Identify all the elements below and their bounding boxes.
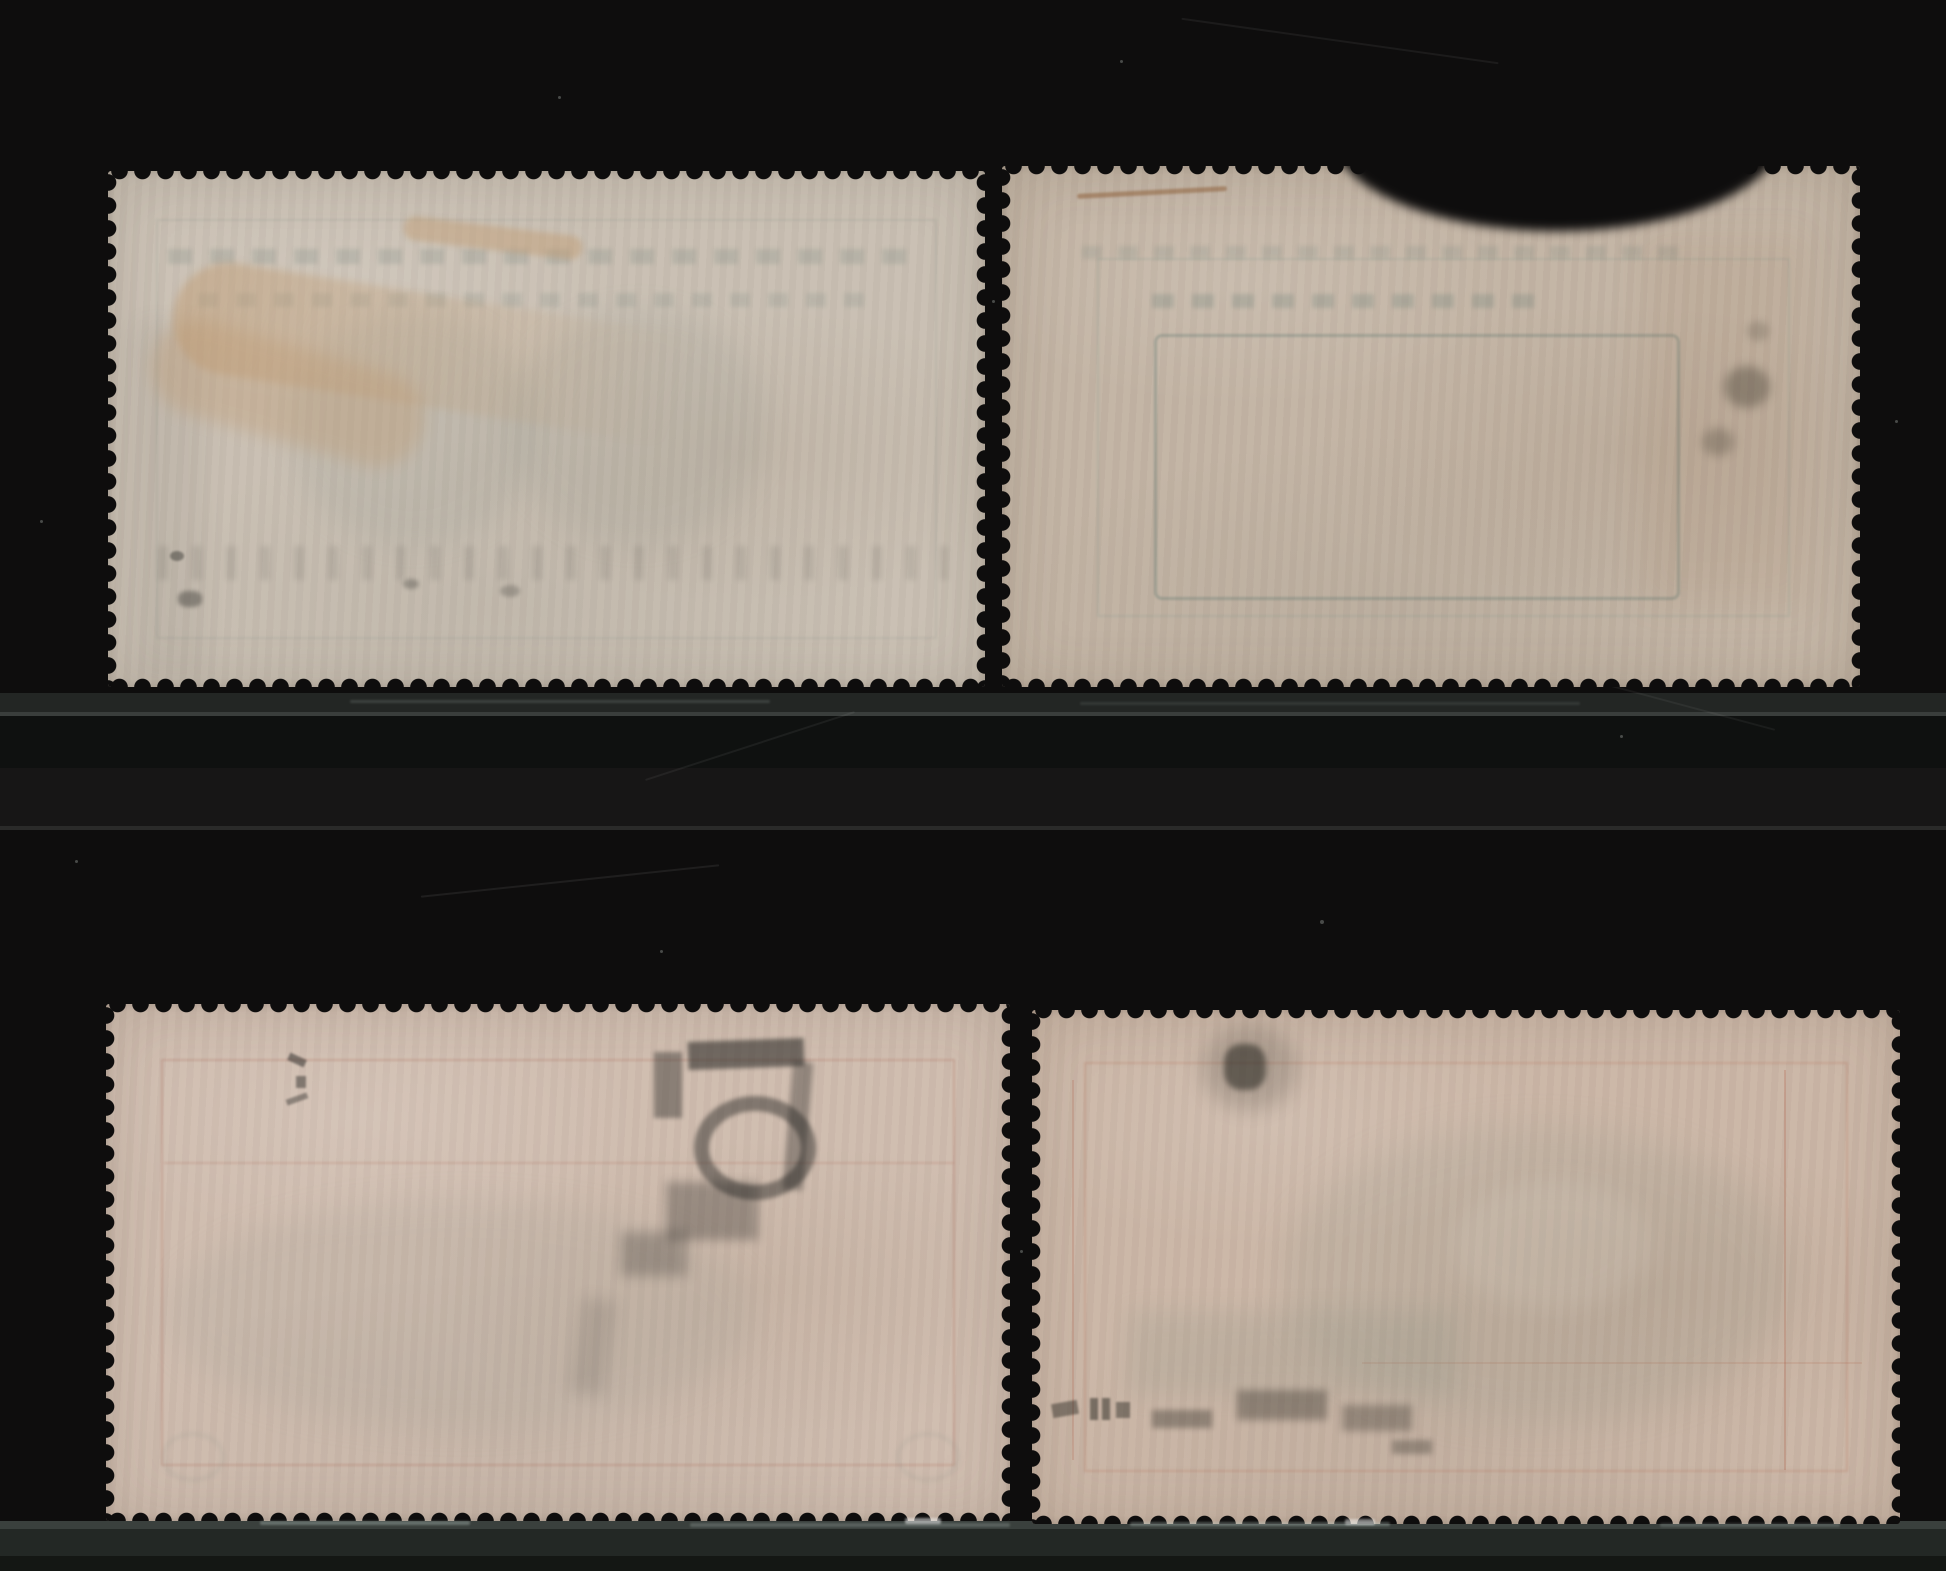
dust-speck [1020, 1250, 1023, 1253]
scratch [1181, 18, 1498, 65]
ink-speck [296, 1076, 306, 1088]
scuff-mark [1345, 1519, 1375, 1525]
dust-speck [1620, 735, 1623, 738]
ink-offset-mark [1152, 1410, 1212, 1428]
ghost-text-row [158, 546, 948, 580]
dust-speck [1120, 60, 1123, 63]
ink-offset-mark [1392, 1440, 1432, 1454]
ghost-numeral-oval [896, 1432, 960, 1482]
ink-offset-mark [621, 1232, 687, 1276]
ink-offset-mark [1342, 1405, 1412, 1431]
dust-speck [660, 950, 663, 953]
ink-offset-mark [1237, 1390, 1327, 1420]
scuff-mark [1660, 1523, 1840, 1527]
ink-speck [1224, 1044, 1266, 1090]
ink-speck [403, 579, 419, 589]
dust-speck [40, 520, 43, 523]
ink-speck [170, 551, 184, 561]
hinge-remnant [1077, 186, 1227, 199]
mount-strip-mid [0, 768, 1946, 826]
ink-offset-mark [1102, 1398, 1110, 1420]
ink-speck [500, 585, 520, 597]
mount-strip-bottom-dark [0, 1556, 1946, 1571]
scuff-mark [1080, 702, 1580, 705]
ghost-numeral-oval [161, 1432, 225, 1482]
ink-speck [1702, 428, 1734, 456]
dust-speck [1895, 420, 1898, 423]
stockpage-photo [0, 0, 1946, 1571]
scuff-mark [690, 1523, 1010, 1527]
ink-offset-mark [1090, 1398, 1098, 1420]
ink-offset-mark [1116, 1402, 1130, 1418]
ink-offset-mark [654, 1052, 682, 1118]
mount-strip-bottom-band [0, 1529, 1946, 1556]
stamp-back-top-right [1002, 166, 1860, 687]
ink-offset-mark [688, 1038, 805, 1070]
mount-strip-seam [0, 826, 1946, 830]
ink-speck [178, 591, 202, 607]
ink-speck [1747, 321, 1769, 341]
torn-edge-shadow [1332, 166, 1782, 231]
dust-speck [75, 860, 78, 863]
stamp-back-bottom-left [106, 1004, 1010, 1521]
dust-speck [558, 96, 561, 99]
design-show-through [1127, 1310, 1457, 1395]
scuff-mark [905, 1518, 941, 1524]
stamp-back-top-left [108, 171, 985, 687]
scuff-mark [350, 700, 770, 703]
ghost-frame [164, 1162, 954, 1164]
ghost-text-row [1152, 294, 1552, 308]
ink-speck [1724, 366, 1770, 408]
dust-speck [1320, 920, 1324, 924]
scuff-mark [260, 1521, 470, 1525]
mount-strip-shadow [0, 716, 1946, 768]
dust-speck [992, 300, 995, 303]
scratch [421, 864, 720, 897]
ghost-text-row [1082, 246, 1682, 259]
design-show-through [1452, 1180, 1652, 1310]
stamp-back-bottom-right [1032, 1010, 1900, 1524]
ghost-frame [1154, 334, 1680, 600]
ink-offset-mark [1051, 1400, 1079, 1418]
design-show-through [1642, 236, 1812, 606]
